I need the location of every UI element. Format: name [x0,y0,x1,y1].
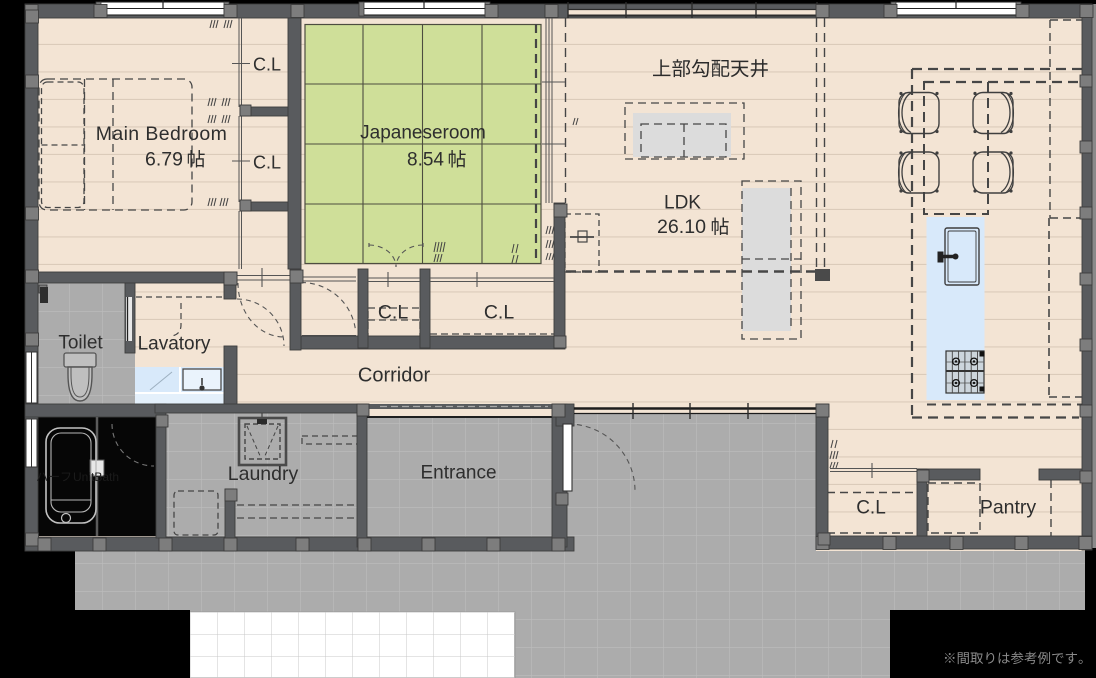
svg-text:Laundry: Laundry [228,463,299,485]
svg-text:C.L: C.L [253,153,281,173]
svg-text:Main Bedroom: Main Bedroom [96,123,228,145]
svg-text:Entrance: Entrance [420,463,496,484]
svg-text:C.L: C.L [484,302,515,324]
svg-text:Pantry: Pantry [980,497,1037,519]
svg-text:Toilet: Toilet [58,333,103,354]
svg-text:LDK: LDK [664,193,701,214]
svg-text:26.10: 26.10 [657,216,706,238]
svg-text:UnitBath: UnitBath [73,470,119,484]
svg-text:Japaneseroom: Japaneseroom [360,123,486,144]
svg-text:C.L: C.L [378,302,409,324]
svg-text:8.54: 8.54 [407,150,444,171]
svg-text:6.79: 6.79 [145,149,183,171]
svg-text:C.L: C.L [856,498,886,519]
svg-text:Lavatory: Lavatory [138,334,211,355]
svg-text:Corridor: Corridor [358,365,431,387]
svg-text:C.L: C.L [253,55,281,75]
